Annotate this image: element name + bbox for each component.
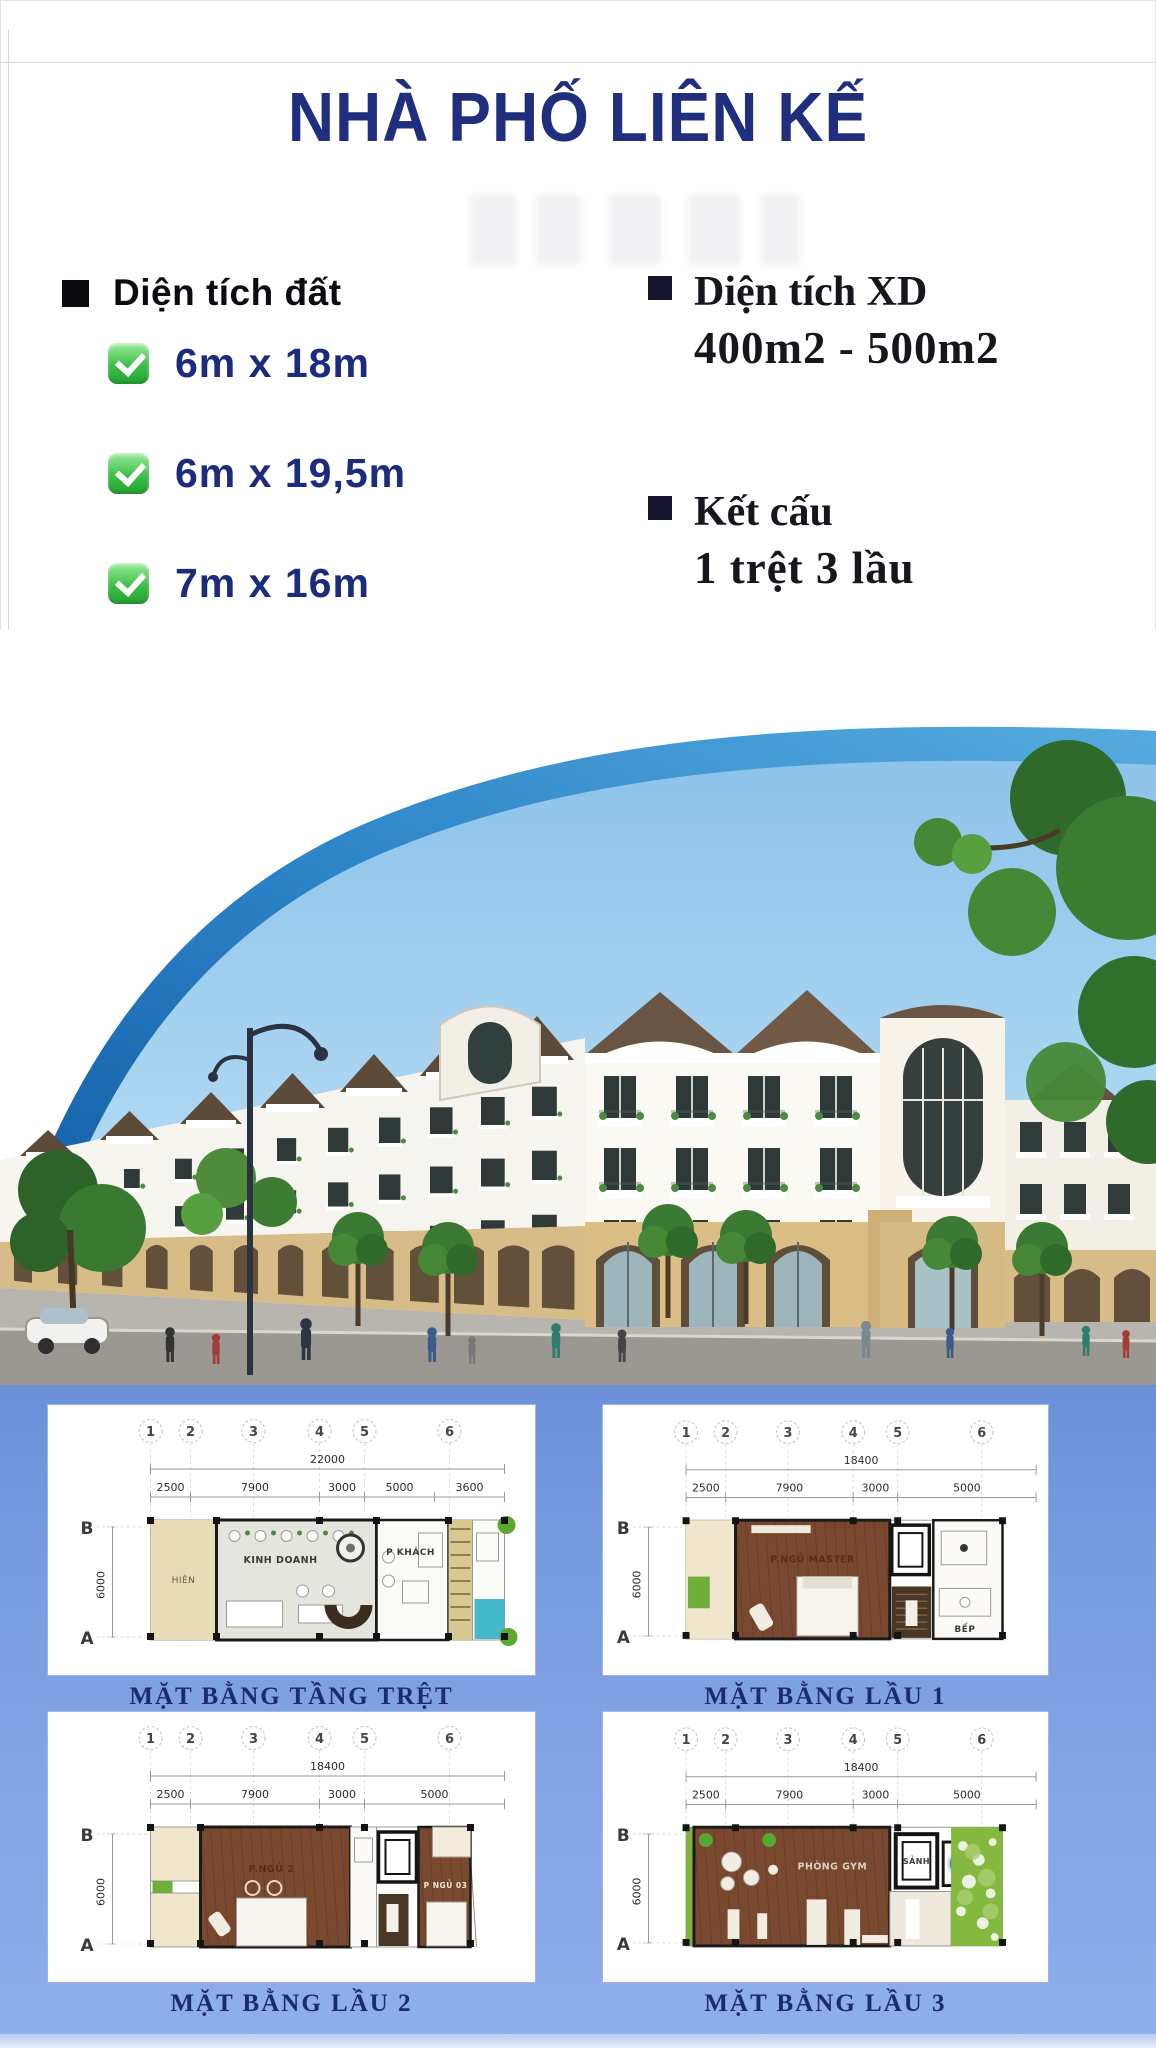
svg-text:6000: 6000	[95, 1571, 108, 1599]
floor-plan-panel: 123456184002500790030005000BA6000P.NGỦ M…	[603, 1405, 1048, 1675]
svg-text:2: 2	[721, 1733, 730, 1748]
svg-text:3: 3	[783, 1426, 792, 1441]
check-mark	[115, 455, 146, 487]
svg-text:6000: 6000	[631, 1878, 644, 1906]
land-size-item: 6m x 19,5m	[108, 450, 406, 497]
brochure-page: NHÀ PHỐ LIÊN KẾ Diện tích đất 6m x 18m6m…	[0, 0, 1156, 2048]
svg-text:1: 1	[682, 1733, 691, 1748]
svg-text:22000: 22000	[310, 1453, 345, 1466]
svg-text:B: B	[617, 1825, 630, 1845]
svg-text:4: 4	[315, 1425, 324, 1440]
svg-text:6000: 6000	[95, 1878, 108, 1906]
land-size-label: 7m x 16m	[175, 560, 370, 607]
construction-area-heading-row: Diện tích XD	[648, 268, 1118, 316]
svg-text:3000: 3000	[328, 1481, 356, 1494]
svg-text:3: 3	[249, 1425, 258, 1440]
page-title: NHÀ PHỐ LIÊN KẾ	[0, 77, 1156, 157]
land-size-label: 6m x 19,5m	[175, 450, 406, 497]
svg-text:7900: 7900	[776, 1789, 804, 1802]
building-render-illustration	[0, 630, 1156, 1390]
floor-plan-drawing: 123456184002500790030005000BA6000P.NGỦ 2…	[48, 1712, 535, 1982]
svg-text:2500: 2500	[157, 1481, 185, 1494]
land-area-heading: Diện tích đất	[113, 272, 342, 314]
svg-text:5: 5	[360, 1732, 369, 1747]
svg-text:HIÊN: HIÊN	[172, 1574, 196, 1586]
svg-text:18400: 18400	[310, 1760, 345, 1773]
structure-value: 1 trệt 3 lầu	[694, 542, 1118, 594]
svg-text:3: 3	[783, 1733, 792, 1748]
land-size-label: 6m x 18m	[175, 340, 370, 387]
construction-area-value: 400m2 - 500m2	[694, 322, 1118, 374]
svg-text:4: 4	[849, 1426, 858, 1441]
svg-text:5000: 5000	[386, 1481, 414, 1494]
bottom-strip	[0, 2034, 1156, 2048]
svg-text:5: 5	[893, 1426, 902, 1441]
svg-text:3: 3	[249, 1732, 258, 1747]
svg-text:3600: 3600	[456, 1481, 484, 1494]
svg-text:B: B	[81, 1826, 94, 1846]
floor-plan-drawing: 1234562200025007900300050003600BA6000HIÊ…	[48, 1405, 535, 1675]
structure-heading-row: Kết cấu	[648, 488, 1118, 536]
svg-text:A: A	[81, 1936, 95, 1956]
svg-text:A: A	[617, 1627, 630, 1647]
svg-text:1: 1	[146, 1732, 155, 1747]
watermark	[470, 195, 800, 265]
svg-text:5000: 5000	[421, 1788, 449, 1801]
green-check-icon	[108, 453, 149, 494]
svg-text:KINH DOANH: KINH DOANH	[243, 1555, 317, 1566]
square-bullet-icon	[648, 496, 672, 520]
svg-text:5: 5	[360, 1425, 369, 1440]
svg-text:7900: 7900	[241, 1788, 269, 1801]
floor-plan-title: MẶT BẰNG LẦU 3	[603, 1990, 1048, 2018]
svg-text:6: 6	[977, 1426, 986, 1441]
svg-text:A: A	[81, 1629, 95, 1649]
svg-text:P.NGỦ MASTER: P.NGỦ MASTER	[770, 1553, 855, 1566]
svg-text:2: 2	[721, 1426, 730, 1441]
svg-text:2: 2	[186, 1425, 195, 1440]
svg-text:5: 5	[893, 1733, 902, 1748]
svg-text:1: 1	[146, 1425, 155, 1440]
floor-plan-title: MẶT BẰNG TẦNG TRỆT	[48, 1683, 535, 1711]
floor-plan-panel: 1234562200025007900300050003600BA6000HIÊ…	[48, 1405, 535, 1675]
svg-text:7900: 7900	[776, 1482, 804, 1495]
svg-text:3000: 3000	[862, 1789, 890, 1802]
land-size-item: 7m x 16m	[108, 560, 406, 607]
svg-text:B: B	[617, 1518, 630, 1538]
construction-area-heading: Diện tích XD	[694, 268, 927, 316]
land-area-heading-row: Diện tích đất	[62, 272, 342, 314]
green-check-icon	[108, 343, 149, 384]
structure-heading: Kết cấu	[694, 488, 833, 536]
svg-text:7900: 7900	[241, 1481, 269, 1494]
check-mark	[115, 565, 146, 597]
svg-text:P NGỦ 03: P NGỦ 03	[424, 1880, 468, 1890]
svg-text:6000: 6000	[631, 1571, 644, 1599]
svg-text:B: B	[81, 1519, 94, 1539]
svg-text:A: A	[617, 1934, 630, 1954]
svg-text:18400: 18400	[844, 1761, 879, 1774]
square-bullet-icon	[62, 280, 89, 307]
svg-text:2500: 2500	[692, 1789, 720, 1802]
floor-plan-panel: 123456184002500790030005000BA6000PHÒNG G…	[603, 1712, 1048, 1982]
floor-plan-title: MẶT BẰNG LẦU 1	[603, 1683, 1048, 1711]
floor-plan-drawing: 123456184002500790030005000BA6000P.NGỦ M…	[603, 1405, 1048, 1675]
svg-text:5000: 5000	[953, 1789, 981, 1802]
svg-text:PHÒNG GYM: PHÒNG GYM	[798, 1861, 868, 1873]
square-bullet-icon	[648, 276, 672, 300]
svg-text:2500: 2500	[692, 1482, 720, 1495]
floor-plan-drawing: 123456184002500790030005000BA6000PHÒNG G…	[603, 1712, 1048, 1982]
land-size-list: 6m x 18m6m x 19,5m7m x 16m	[108, 340, 406, 607]
floor-plan-panel: 123456184002500790030005000BA6000P.NGỦ 2…	[48, 1712, 535, 1982]
svg-text:5000: 5000	[953, 1482, 981, 1495]
svg-text:1: 1	[682, 1426, 691, 1441]
green-check-icon	[108, 563, 149, 604]
construction-area-block: Diện tích XD 400m2 - 500m2	[648, 268, 1118, 374]
svg-text:6: 6	[445, 1425, 454, 1440]
building-render	[0, 630, 1156, 1390]
structure-block: Kết cấu 1 trệt 3 lầu	[648, 488, 1118, 594]
floor-plan-title: MẶT BẰNG LẦU 2	[48, 1990, 535, 2018]
svg-text:4: 4	[849, 1733, 858, 1748]
svg-text:6: 6	[445, 1732, 454, 1747]
svg-text:2500: 2500	[157, 1788, 185, 1801]
check-mark	[115, 345, 146, 377]
svg-text:P.NGỦ 2: P.NGỦ 2	[249, 1862, 295, 1875]
svg-text:4: 4	[315, 1732, 324, 1747]
page-border-top	[0, 62, 1156, 63]
svg-text:3000: 3000	[328, 1788, 356, 1801]
svg-text:2: 2	[186, 1732, 195, 1747]
svg-text:18400: 18400	[844, 1454, 879, 1467]
svg-text:SẢNH: SẢNH	[903, 1855, 930, 1866]
land-size-item: 6m x 18m	[108, 340, 406, 387]
svg-text:6: 6	[977, 1733, 986, 1748]
floor-plans-section: 1234562200025007900300050003600BA6000HIÊ…	[0, 1385, 1156, 2048]
svg-text:P KHÁCH: P KHÁCH	[386, 1546, 435, 1558]
svg-text:3000: 3000	[862, 1482, 890, 1495]
